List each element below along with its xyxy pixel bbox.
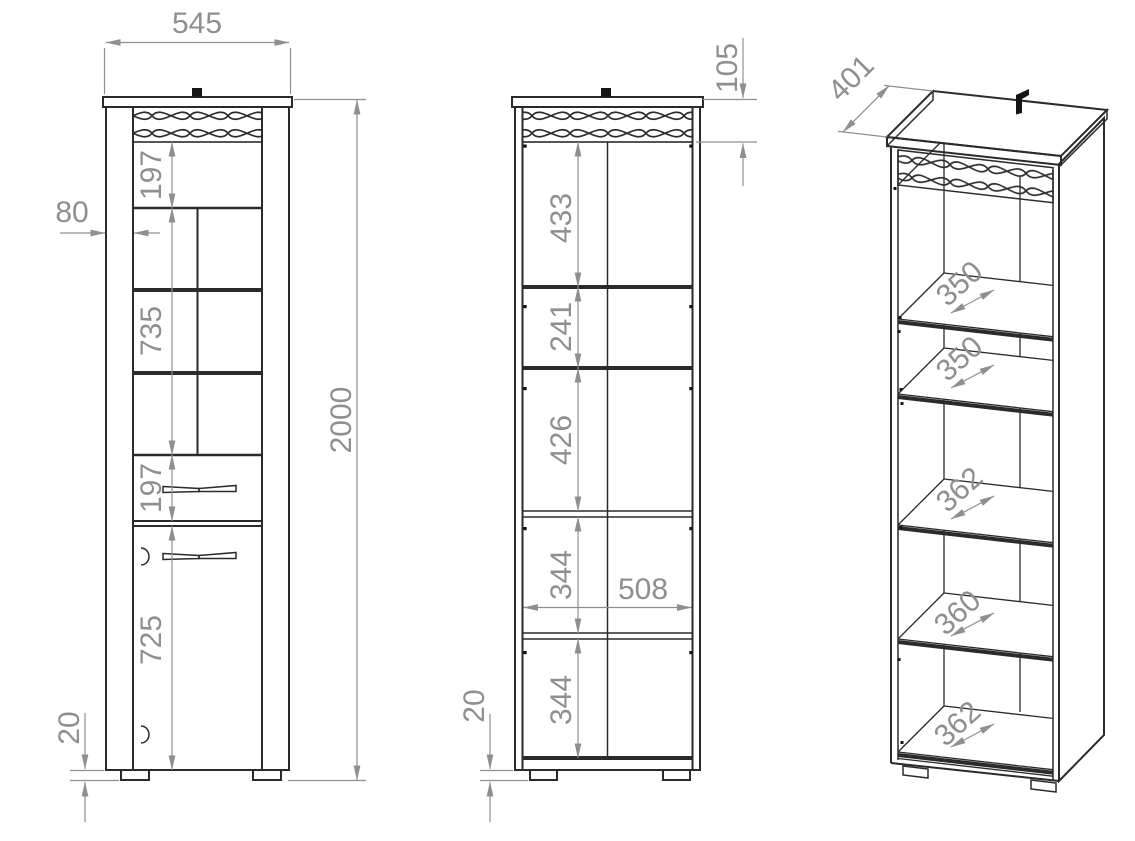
dim-label-side-offset: 80 — [55, 196, 88, 229]
dim-label-section-4: 344 — [545, 550, 578, 600]
top-panel — [512, 97, 703, 107]
drawer-handle — [163, 486, 236, 493]
drawing-canvas: 545 2000 80 197 735 197 725 20 — [0, 0, 1135, 841]
section-view-labels: 105 433 241 426 344 344 508 20 — [458, 43, 744, 725]
dim-label-width: 545 — [172, 7, 222, 40]
furniture-technical-drawing: 545 2000 80 197 735 197 725 20 — [0, 0, 1135, 841]
dim-label-depth: 401 — [822, 49, 881, 108]
dim-label-section-2: 241 — [545, 302, 578, 352]
dim-label-top-panel: 105 — [711, 43, 744, 93]
door-handle — [163, 553, 236, 560]
section-view-cabinet — [512, 88, 703, 780]
foot — [121, 770, 149, 780]
dim-label-inner-width: 508 — [618, 573, 668, 606]
dim-label-section-3: 426 — [545, 415, 578, 465]
foot — [530, 770, 557, 780]
foot — [253, 770, 281, 780]
right-side-panel — [1059, 118, 1104, 781]
hinge-icon — [141, 548, 149, 565]
dim-overall-width — [105, 43, 291, 95]
dim-label-height: 2000 — [325, 387, 358, 454]
dim-label-section-3: 197 — [135, 463, 168, 513]
decor-band — [898, 150, 1053, 203]
decor-band — [133, 107, 262, 142]
dim-label-section-1: 197 — [135, 150, 168, 200]
foot — [1031, 780, 1056, 792]
top-knob — [601, 88, 611, 97]
foot — [663, 770, 690, 780]
dim-label-foot: 20 — [53, 711, 86, 744]
hinge-icon — [141, 726, 149, 743]
top-knob — [192, 88, 202, 97]
dim-label-section-1: 433 — [545, 193, 578, 243]
iso-cabinet — [887, 89, 1107, 792]
dim-label-section-5: 344 — [545, 675, 578, 725]
foot — [903, 766, 928, 778]
front-view: 545 2000 80 197 735 197 725 20 — [53, 7, 366, 822]
iso-view: 401 350 350 362 360 362 — [822, 49, 1107, 792]
dim-foot-height — [480, 714, 528, 822]
top-panel — [103, 97, 292, 107]
section-view: 105 433 241 426 344 344 508 20 — [458, 38, 757, 822]
dim-label-section-4: 725 — [135, 615, 168, 665]
front-view-cabinet — [103, 88, 292, 780]
dim-label-foot: 20 — [458, 689, 491, 722]
dim-label-section-2: 735 — [135, 306, 168, 356]
decor-band — [523, 107, 693, 142]
